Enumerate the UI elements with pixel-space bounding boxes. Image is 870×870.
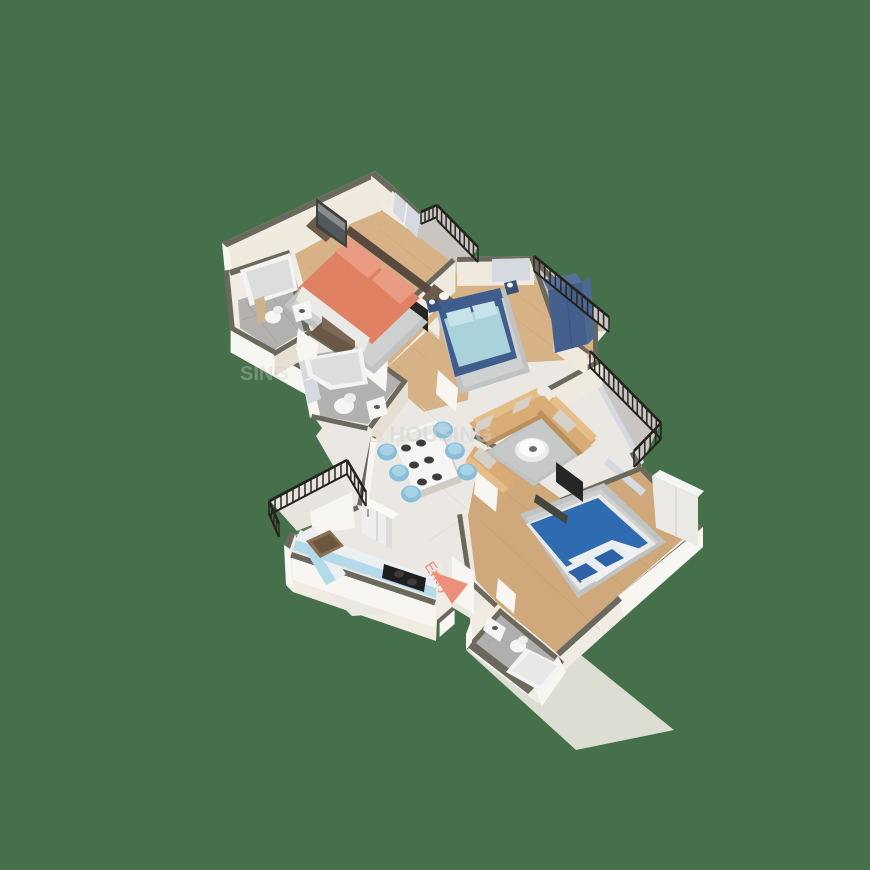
svg-text:⌂ HOUSING: ⌂ HOUSING <box>370 422 492 447</box>
svg-text:SING: SING <box>240 363 289 385</box>
